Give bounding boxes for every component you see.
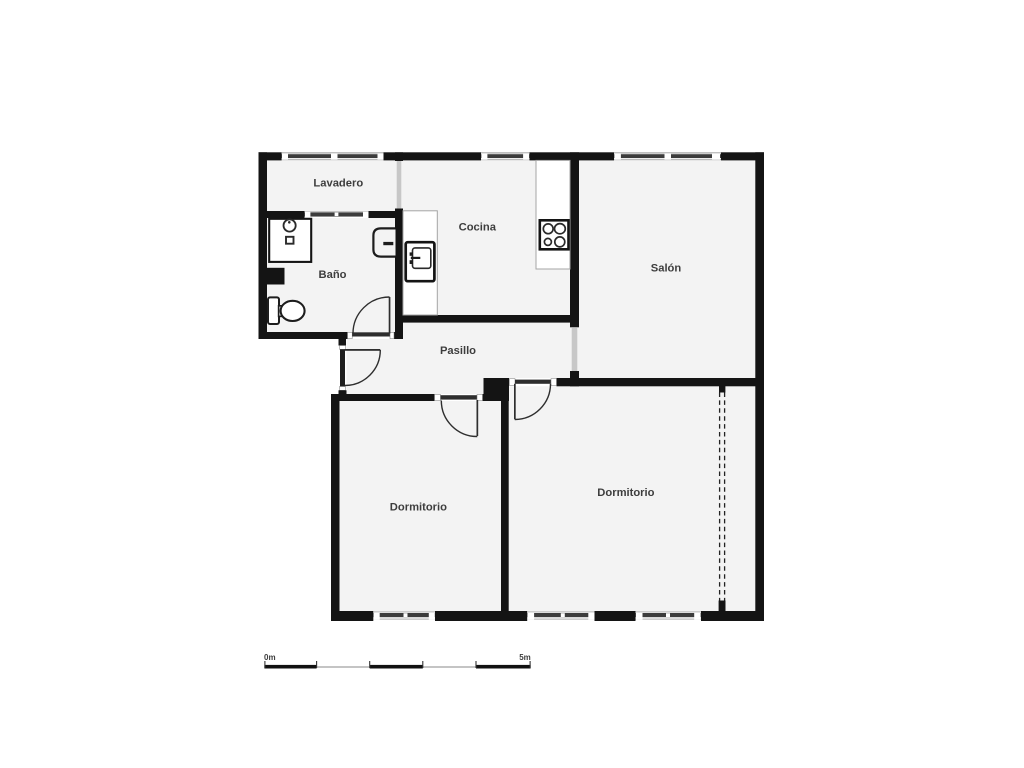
svg-text:Baño: Baño [319, 269, 347, 281]
svg-text:Dormitorio: Dormitorio [390, 502, 447, 514]
svg-text:Cocina: Cocina [459, 222, 497, 234]
svg-text:5m: 5m [519, 653, 531, 662]
svg-text:Dormitorio: Dormitorio [597, 487, 654, 499]
svg-text:0m: 0m [264, 653, 276, 662]
svg-text:Salón: Salón [651, 263, 682, 275]
svg-text:Lavadero: Lavadero [313, 177, 363, 189]
svg-text:Pasillo: Pasillo [440, 345, 476, 357]
